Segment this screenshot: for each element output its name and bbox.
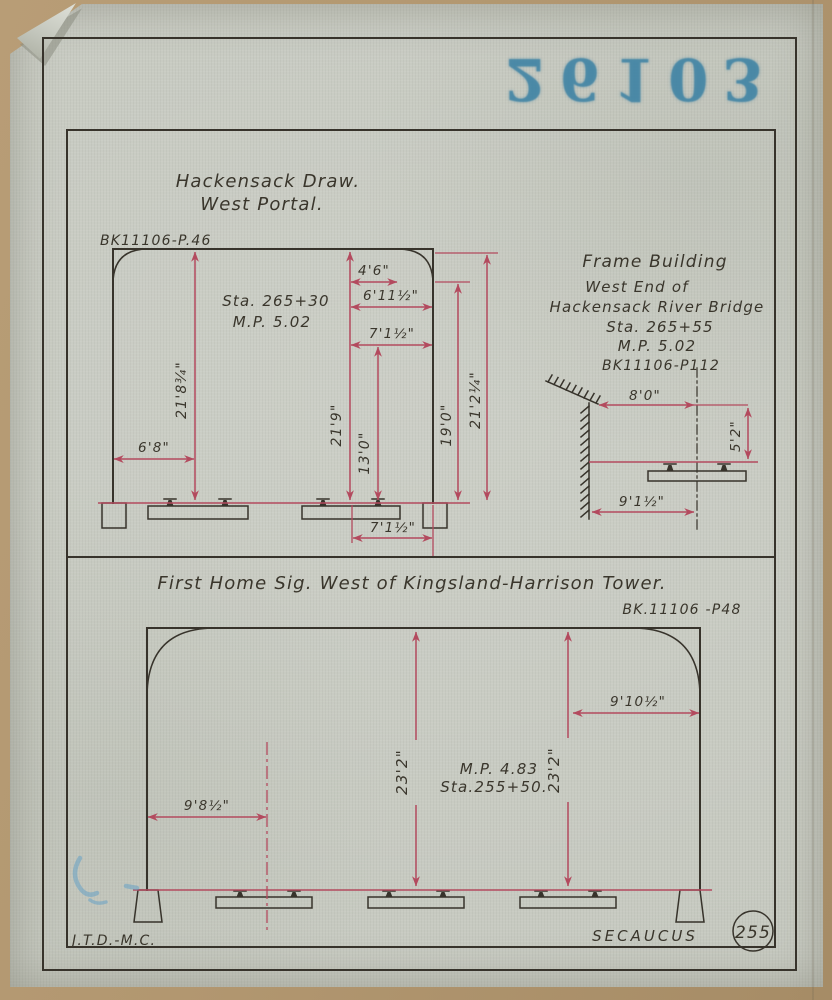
wall-hatch bbox=[581, 406, 589, 517]
sheet-footer: J.T.D.-M.C. SECAUCUS 255 bbox=[69, 911, 773, 951]
portal-fillet-right bbox=[398, 249, 433, 284]
eave-hatch bbox=[548, 375, 600, 403]
dim-label: 6'8" bbox=[138, 440, 170, 456]
blue-smudge bbox=[75, 858, 137, 903]
dim-label: 9'1½" bbox=[619, 494, 665, 510]
border-frame bbox=[43, 38, 796, 970]
frame-building-line2: West End of bbox=[585, 278, 690, 296]
west-portal-station: Sta. 265+30 bbox=[222, 292, 330, 310]
home-signal-book-ref: BK.11106 -P48 bbox=[622, 602, 741, 618]
dim-label: 9'10½" bbox=[610, 694, 666, 710]
blueprint-drawing: Hackensack Draw. West Portal. BK11106-P.… bbox=[0, 0, 832, 1000]
frame-building-drawing: Frame Building West End of Hackensack Ri… bbox=[546, 252, 764, 532]
home-signal-station: Sta.255+50. bbox=[440, 778, 548, 796]
archive-number-stamp: 26103 bbox=[498, 44, 784, 110]
dim-label: 4'6" bbox=[358, 263, 390, 279]
portal-fillet-right bbox=[632, 628, 700, 697]
pier bbox=[102, 503, 126, 528]
dim-label: 13'0" bbox=[357, 431, 373, 474]
home-signal-dimensions bbox=[133, 632, 712, 930]
dim-label: 21'8¾" bbox=[174, 361, 190, 419]
dim-label: 21'2¼" bbox=[468, 371, 484, 429]
frame-building-title: Frame Building bbox=[582, 252, 727, 272]
frame-building-milepost: M.P. 5.02 bbox=[618, 337, 696, 355]
location-label: SECAUCUS bbox=[592, 927, 698, 945]
drafter-initials: J.T.D.-M.C. bbox=[69, 933, 156, 949]
dim-label: 6'11½" bbox=[363, 288, 419, 304]
dim-label: 5'2" bbox=[728, 420, 744, 452]
pier bbox=[134, 890, 162, 922]
sheet-number: 255 bbox=[735, 923, 771, 943]
frame-building-book-ref: BK11106-P112 bbox=[602, 358, 720, 374]
dim-label: 7'1½" bbox=[370, 520, 416, 536]
dim-label: 21'9" bbox=[329, 403, 345, 446]
west-portal-milepost: M.P. 5.02 bbox=[233, 313, 311, 331]
track-tie bbox=[368, 897, 464, 908]
dim-label: 9'8½" bbox=[184, 798, 230, 814]
west-portal-book-ref: BK11106-P.46 bbox=[100, 233, 212, 249]
portal-outline bbox=[147, 628, 700, 890]
rail-profiles bbox=[234, 891, 601, 897]
west-portal-title-2: West Portal. bbox=[200, 194, 324, 215]
frame-building-station: Sta. 265+55 bbox=[606, 318, 714, 336]
portal-fillet-left bbox=[147, 628, 215, 697]
dim-label: 8'0" bbox=[629, 388, 661, 404]
home-signal-milepost: M.P. 4.83 bbox=[460, 760, 538, 778]
pier bbox=[676, 890, 704, 922]
frame-building-line3: Hackensack River Bridge bbox=[550, 298, 765, 316]
home-signal-drawing: First Home Sig. West of Kingsland-Harris… bbox=[133, 573, 742, 930]
dim-label: 19'0" bbox=[439, 403, 455, 446]
track-tie bbox=[520, 897, 616, 908]
west-portal-drawing: Hackensack Draw. West Portal. BK11106-P.… bbox=[98, 171, 498, 556]
track-tie bbox=[302, 506, 400, 519]
track-tie bbox=[148, 506, 248, 519]
scanned-drawing-sheet: Hackensack Draw. West Portal. BK11106-P.… bbox=[0, 0, 832, 1000]
dim-label: 23'2" bbox=[393, 749, 411, 795]
outer-border bbox=[43, 38, 796, 970]
track-tie bbox=[216, 897, 312, 908]
home-signal-title: First Home Sig. West of Kingsland-Harris… bbox=[157, 573, 666, 594]
west-portal-title-1: Hackensack Draw. bbox=[176, 171, 361, 192]
dim-label: 23'2" bbox=[545, 747, 563, 793]
pier bbox=[423, 503, 447, 528]
dim-label: 7'1½" bbox=[369, 326, 415, 342]
portal-fillet-left bbox=[113, 249, 148, 284]
